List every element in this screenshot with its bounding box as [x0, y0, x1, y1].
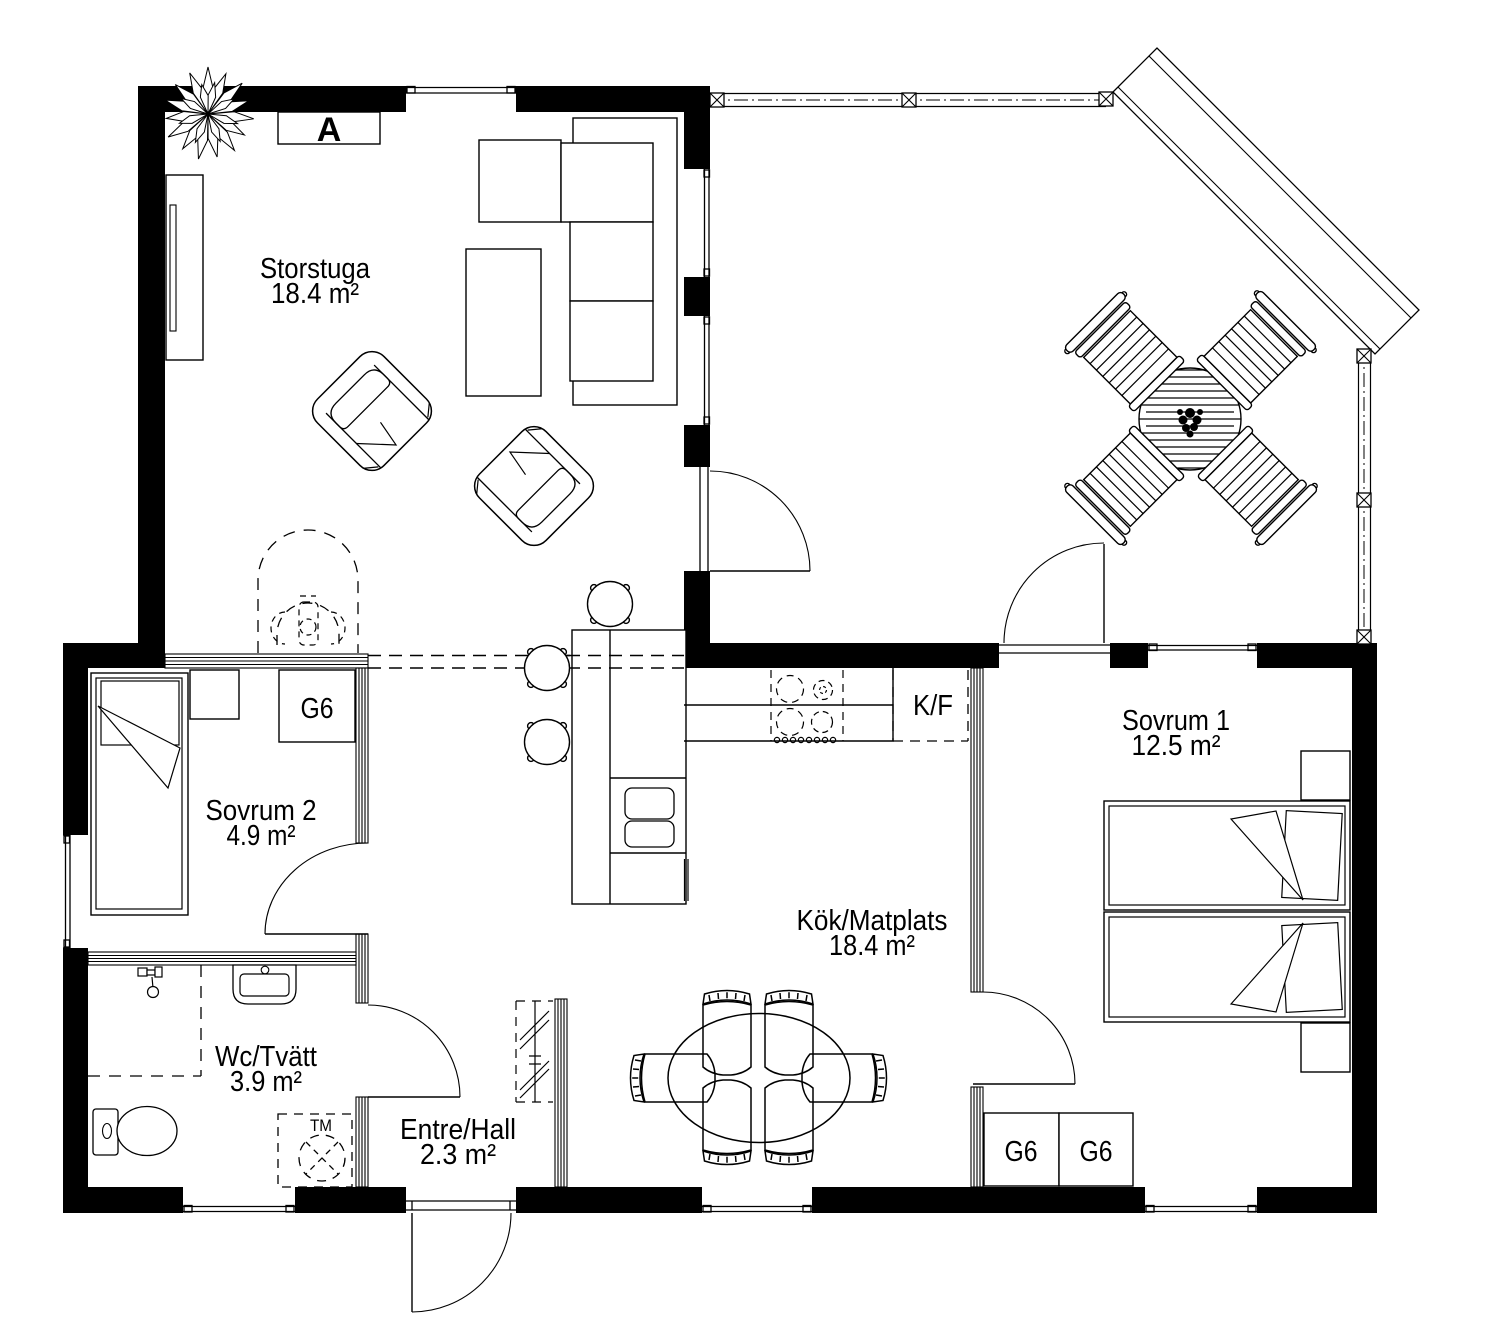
svg-text:TM: TM — [310, 1116, 332, 1135]
svg-text:G6: G6 — [301, 693, 334, 725]
svg-text:18.4 m²: 18.4 m² — [829, 930, 915, 962]
svg-text:4.9 m²: 4.9 m² — [227, 820, 296, 852]
svg-text:12.5 m²: 12.5 m² — [1132, 730, 1221, 762]
svg-text:2.3 m²: 2.3 m² — [420, 1139, 496, 1171]
svg-text:3.9 m²: 3.9 m² — [230, 1066, 302, 1098]
svg-text:G6: G6 — [1005, 1136, 1038, 1168]
svg-text:A: A — [317, 111, 342, 149]
svg-text:18.4 m²: 18.4 m² — [271, 278, 359, 310]
svg-text:G6: G6 — [1080, 1136, 1113, 1168]
svg-text:K/F: K/F — [913, 690, 953, 722]
